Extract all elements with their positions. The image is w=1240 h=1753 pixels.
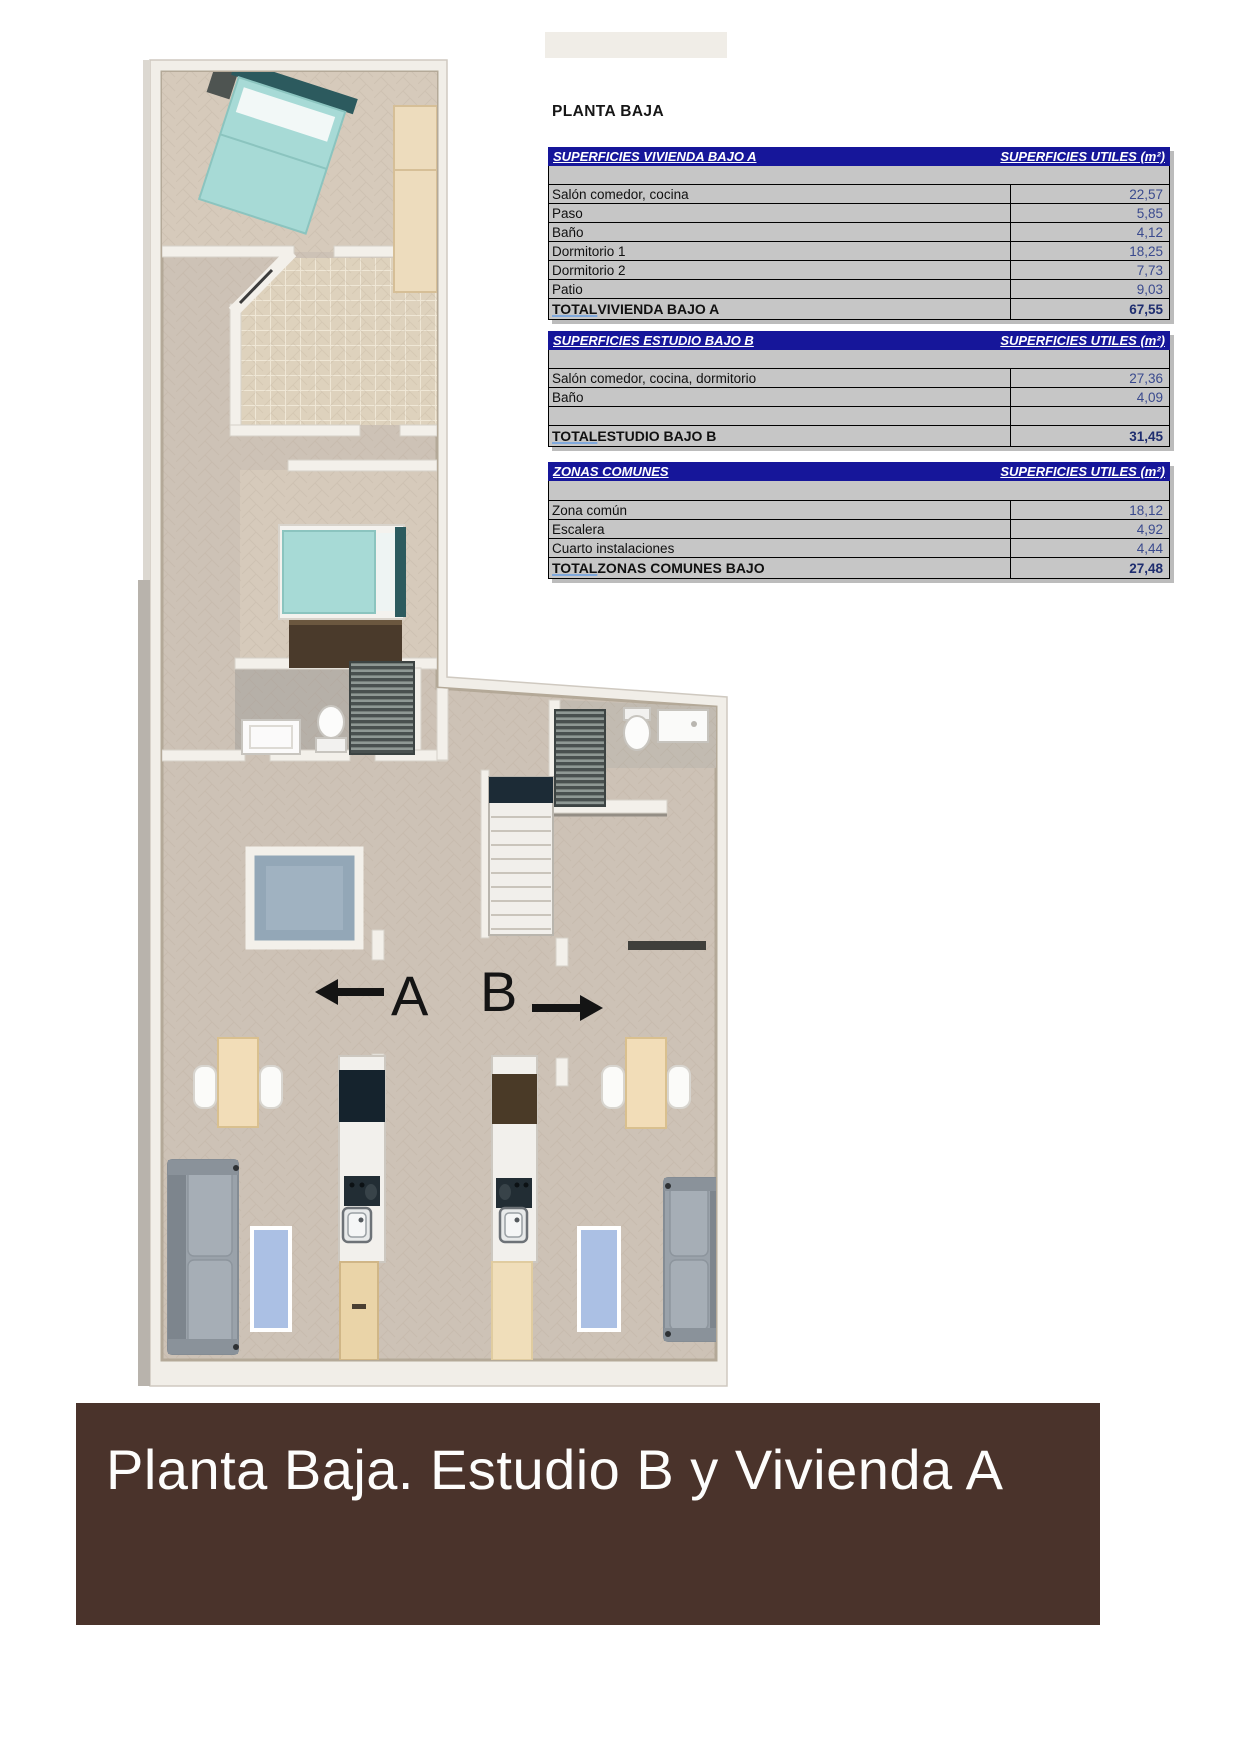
table-row: Salón comedor, cocina 22,57 <box>549 184 1169 203</box>
total-word: TOTAL <box>552 560 597 576</box>
closet-icon <box>289 620 402 668</box>
total-word: TOTAL <box>552 301 597 317</box>
table-row-empty <box>549 406 1169 425</box>
row-label <box>549 407 1011 425</box>
unit-b-label: B <box>480 960 517 1023</box>
floor-grate-b-icon <box>555 710 605 806</box>
table-total-row: TOTAL ESTUDIO BAJO B 31,45 <box>549 425 1169 446</box>
total-rest: VIVIENDA BAJO A <box>597 301 719 317</box>
table-title: SUPERFICIES VIVIENDA BAJO A <box>553 149 756 164</box>
row-value: 4,92 <box>1011 522 1169 537</box>
wardrobe-icon <box>394 106 437 292</box>
table-row: Zona común 18,12 <box>549 500 1169 519</box>
table-row: Dormitorio 1 18,25 <box>549 241 1169 260</box>
caption-text: Planta Baja. Estudio B y Vivienda A <box>106 1437 1003 1502</box>
kitchen-island-b-icon <box>492 1056 537 1262</box>
table-body: Zona común 18,12 Escalera 4,92 Cuarto in… <box>548 481 1170 579</box>
shower-icon <box>250 851 359 945</box>
row-label: Salón comedor, cocina, dormitorio <box>549 369 1011 387</box>
table-row: Escalera 4,92 <box>549 519 1169 538</box>
table-unit-header: SUPERFICIES UTILES (m²) <box>1000 464 1165 479</box>
table-row: Baño 4,09 <box>549 387 1169 406</box>
row-value: 22,57 <box>1011 187 1169 202</box>
table-total-row: TOTAL ZONAS COMUNES BAJO 27,48 <box>549 557 1169 578</box>
row-label: Baño <box>549 223 1011 241</box>
table-row: Baño 4,12 <box>549 222 1169 241</box>
row-value: 7,73 <box>1011 263 1169 278</box>
row-value: 27,36 <box>1011 371 1169 386</box>
table-header: ZONAS COMUNES SUPERFICIES UTILES (m²) <box>548 462 1170 481</box>
row-label: Cuarto instalaciones <box>549 539 1011 557</box>
total-label: TOTAL ESTUDIO BAJO B <box>549 426 1011 446</box>
sofa-a-icon <box>168 1160 239 1354</box>
table-row: Patio 9,03 <box>549 279 1169 298</box>
entry-door-a-icon <box>340 1262 378 1360</box>
row-label: Patio <box>549 280 1011 298</box>
row-label: Dormitorio 2 <box>549 261 1011 279</box>
row-value: 9,03 <box>1011 282 1169 297</box>
table-spacer-row <box>549 350 1169 368</box>
exterior-wall-left-upper <box>143 60 150 580</box>
row-label: Paso <box>549 204 1011 222</box>
bathroom-b-sink-icon <box>658 710 708 742</box>
table-body: Salón comedor, cocina, dormitorio 27,36 … <box>548 350 1170 447</box>
table-zonas-comunes: ZONAS COMUNES SUPERFICIES UTILES (m²) Zo… <box>548 462 1170 579</box>
caption-banner: Planta Baja. Estudio B y Vivienda A <box>76 1403 1100 1625</box>
table-title: ZONAS COMUNES <box>553 464 669 479</box>
bathroom-b-toilet-icon <box>624 708 650 750</box>
row-value: 4,12 <box>1011 225 1169 240</box>
sofa-b-icon <box>664 1178 724 1341</box>
table-unit-header: SUPERFICIES UTILES (m²) <box>1000 333 1165 348</box>
table-header: SUPERFICIES VIVIENDA BAJO A SUPERFICIES … <box>548 147 1170 166</box>
row-label: Dormitorio 1 <box>549 242 1011 260</box>
floor-grate-a-icon <box>350 662 414 754</box>
table-unit-header: SUPERFICIES UTILES (m²) <box>1000 149 1165 164</box>
table-spacer-row <box>549 166 1169 184</box>
table-total-row: TOTAL VIVIENDA BAJO A 67,55 <box>549 298 1169 319</box>
table-row: Salón comedor, cocina, dormitorio 27,36 <box>549 368 1169 387</box>
exterior-wall-left <box>138 580 150 1386</box>
roof-tab <box>545 32 727 58</box>
row-value: 18,25 <box>1011 244 1169 259</box>
rug-b-icon <box>579 1228 619 1330</box>
row-label: Escalera <box>549 520 1011 538</box>
row-value: 5,85 <box>1011 206 1169 221</box>
total-rest: ZONAS COMUNES BAJO <box>597 560 764 576</box>
table-spacer-row <box>549 481 1169 500</box>
entry-door-b-icon <box>492 1262 532 1360</box>
table-row: Dormitorio 2 7,73 <box>549 260 1169 279</box>
row-value: 4,44 <box>1011 541 1169 556</box>
table-row: Paso 5,85 <box>549 203 1169 222</box>
page-title: PLANTA BAJA <box>552 103 664 121</box>
table-estudio-bajo-b: SUPERFICIES ESTUDIO BAJO B SUPERFICIES U… <box>548 331 1170 447</box>
total-value: 67,55 <box>1011 302 1169 317</box>
bed-2-icon <box>279 525 406 619</box>
total-value: 31,45 <box>1011 429 1169 444</box>
row-label: Baño <box>549 388 1011 406</box>
shelf-icon <box>628 941 706 950</box>
total-label: TOTAL VIVIENDA BAJO A <box>549 299 1011 319</box>
table-body: Salón comedor, cocina 22,57 Paso 5,85 Ba… <box>548 166 1170 320</box>
total-word: TOTAL <box>552 428 597 444</box>
total-value: 27,48 <box>1011 561 1169 576</box>
unit-a-label: A <box>391 964 429 1027</box>
bathroom-a-toilet-icon <box>316 706 346 752</box>
row-label: Zona común <box>549 501 1011 519</box>
table-vivienda-bajo-a: SUPERFICIES VIVIENDA BAJO A SUPERFICIES … <box>548 147 1170 320</box>
row-value: 18,12 <box>1011 503 1169 518</box>
staircase-icon <box>489 777 553 935</box>
bathroom-a-sink-icon <box>242 720 300 754</box>
rug-a-icon <box>252 1228 290 1330</box>
table-header: SUPERFICIES ESTUDIO BAJO B SUPERFICIES U… <box>548 331 1170 350</box>
kitchen-island-a-icon <box>339 1056 385 1262</box>
document-page: A B PLANTA BAJA SUPERFICIES VIVIENDA BAJ… <box>0 0 1240 1753</box>
row-value: 4,09 <box>1011 390 1169 405</box>
table-title: SUPERFICIES ESTUDIO BAJO B <box>553 333 754 348</box>
total-label: TOTAL ZONAS COMUNES BAJO <box>549 558 1011 578</box>
table-row: Cuarto instalaciones 4,44 <box>549 538 1169 557</box>
row-label: Salón comedor, cocina <box>549 185 1011 203</box>
total-rest: ESTUDIO BAJO B <box>597 428 716 444</box>
